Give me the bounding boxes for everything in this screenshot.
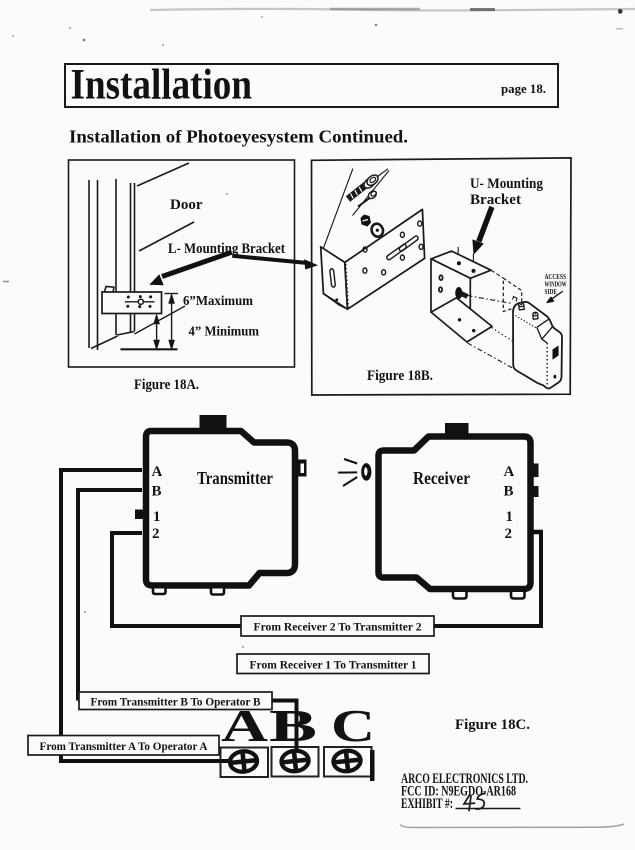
svg-text:EXHIBIT #:: EXHIBIT #: xyxy=(401,796,453,812)
svg-text:A: A xyxy=(221,701,269,751)
svg-text:Figure 18B.: Figure 18B. xyxy=(367,368,433,384)
svg-text:Bracket: Bracket xyxy=(470,192,521,208)
svg-text:1: 1 xyxy=(153,509,161,525)
svg-text:SIDE: SIDE xyxy=(545,288,558,296)
svg-text:Door: Door xyxy=(170,197,203,213)
svg-text:From Receiver 1 To Transmitter: From Receiver 1 To Transmitter 1 xyxy=(250,660,417,672)
svg-text:C: C xyxy=(331,701,375,751)
svg-text:A: A xyxy=(504,464,515,480)
svg-text:Figure 18A.: Figure 18A. xyxy=(134,377,199,393)
svg-text:From Receiver 2 To Transmitter: From Receiver 2 To Transmitter 2 xyxy=(254,622,422,634)
svg-text:From Transmitter A To Operator: From Transmitter A To Operator A xyxy=(40,741,209,753)
svg-text:Installation of Photoeyesystem: Installation of Photoeyesystem Continued… xyxy=(69,127,408,147)
svg-text:B: B xyxy=(504,484,514,500)
svg-text:A: A xyxy=(152,464,163,480)
svg-text:6”Maximum: 6”Maximum xyxy=(183,294,253,309)
svg-text:2: 2 xyxy=(152,526,160,542)
svg-text:2: 2 xyxy=(505,526,513,542)
svg-text:1: 1 xyxy=(506,509,514,525)
svg-text:U- Mounting: U- Mounting xyxy=(470,176,544,192)
svg-text:page 18.: page 18. xyxy=(501,82,546,96)
svg-text:Installation: Installation xyxy=(71,61,253,109)
svg-text:4” Minimum: 4” Minimum xyxy=(189,325,260,340)
svg-text:B: B xyxy=(269,701,317,751)
svg-text:Transmitter: Transmitter xyxy=(197,468,273,488)
svg-text:Receiver: Receiver xyxy=(413,468,470,488)
svg-text:Figure 18C.: Figure 18C. xyxy=(455,717,530,733)
svg-text:B: B xyxy=(152,484,162,500)
